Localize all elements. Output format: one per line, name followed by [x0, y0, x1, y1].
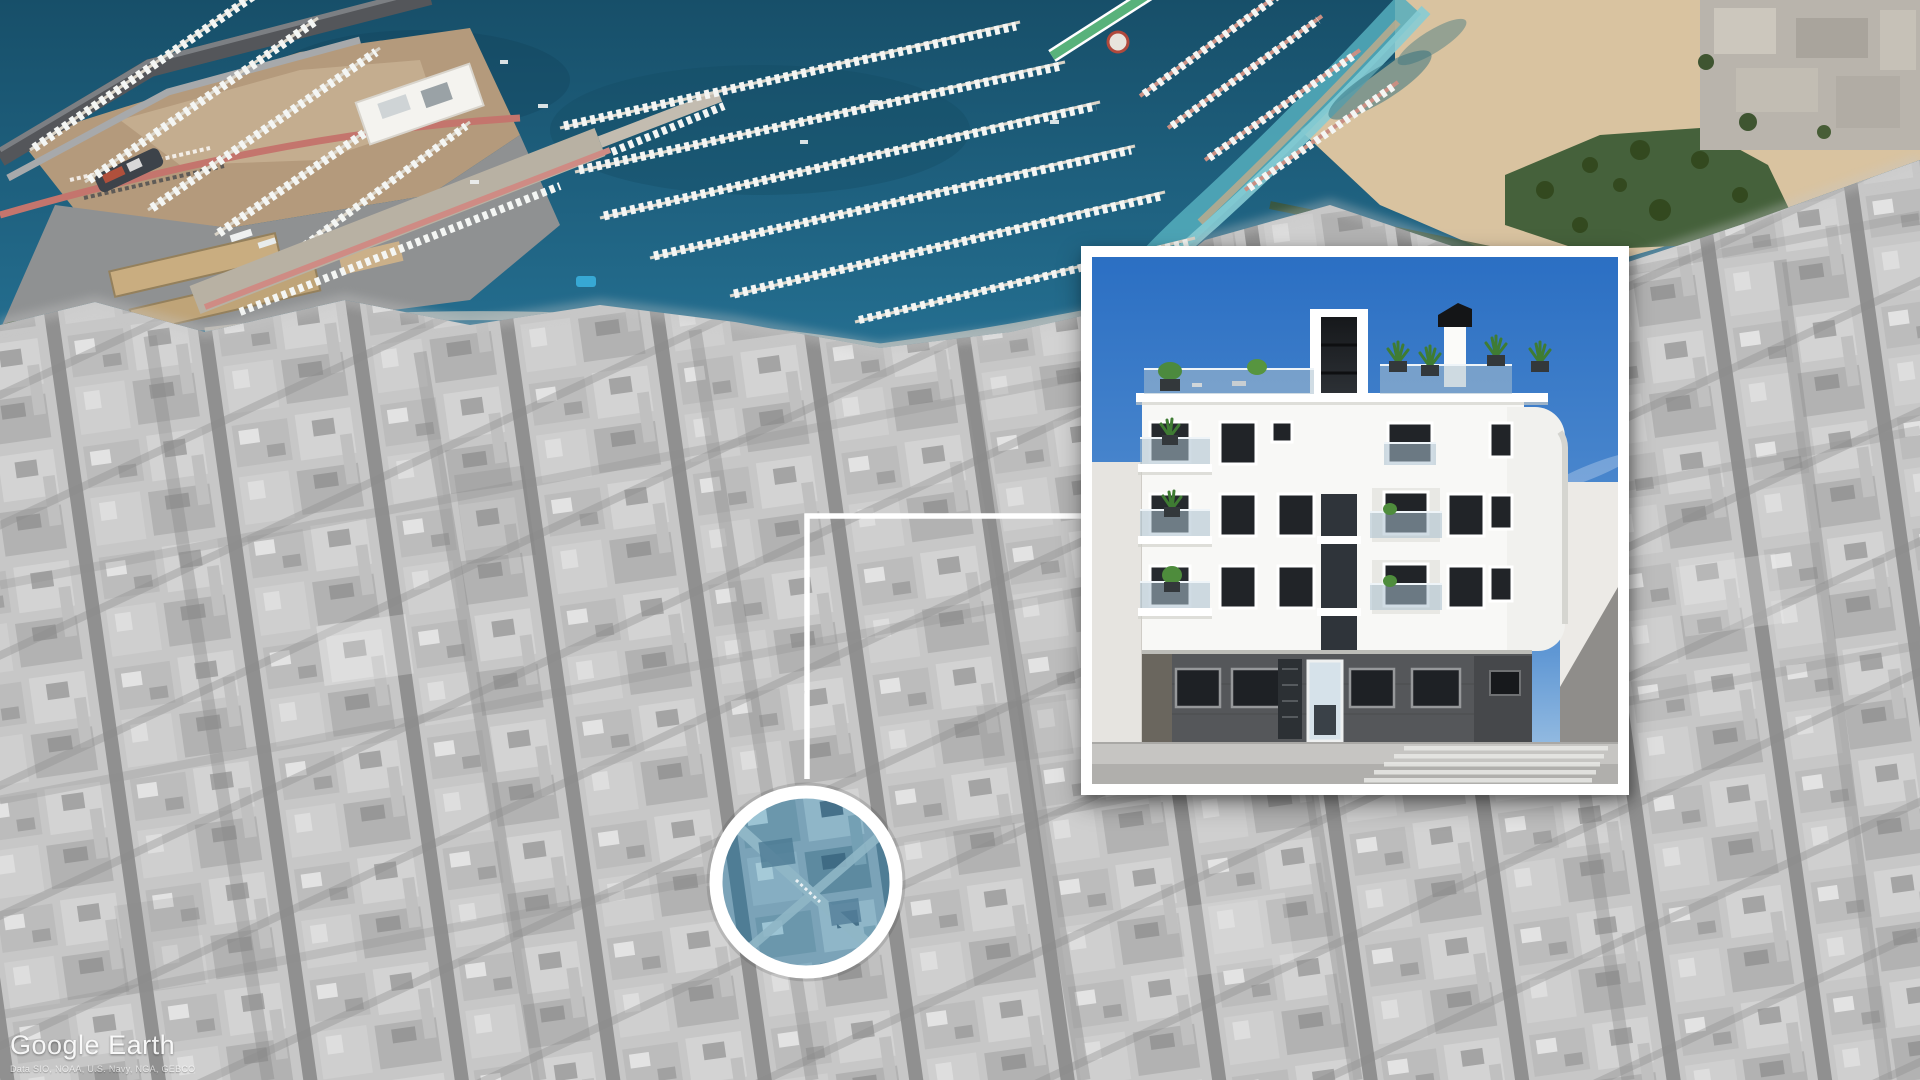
satellite-map: [0, 0, 1920, 1080]
ground-floor: [1142, 650, 1532, 742]
left-neighbor-wall: [1092, 462, 1142, 784]
beachfront-buildings: [1698, 0, 1920, 150]
street: [1092, 742, 1618, 784]
side-volume: [1474, 656, 1532, 742]
harbor-tower: [1108, 32, 1128, 52]
rounded-corner-wing: [1507, 407, 1565, 651]
building-render: [1092, 257, 1618, 784]
location-circle-marker: [709, 785, 903, 979]
waterfront-pool: [576, 276, 596, 287]
building-inset-frame: [1081, 246, 1629, 795]
aerial-map-scene: Google Earth Data SIO, NOAA, U.S. Navy, …: [0, 0, 1920, 1080]
stair-window-strip: [1321, 494, 1357, 652]
roof-parapet: [1136, 393, 1548, 402]
balcony-stack-left: [1138, 419, 1212, 619]
utility-niche: [1278, 659, 1302, 739]
roof-plant: [1158, 362, 1182, 380]
